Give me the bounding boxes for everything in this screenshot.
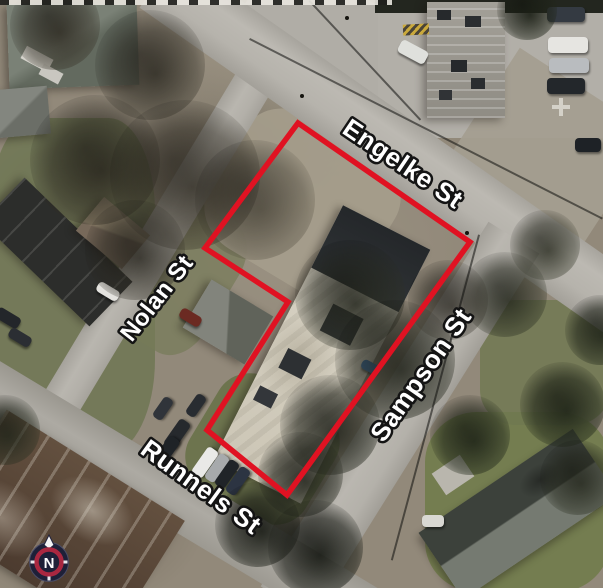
utility-pole [300, 94, 304, 98]
tree [408, 260, 488, 340]
rooftop-ac-3 [451, 60, 467, 72]
map-edge-dashes [0, 0, 392, 5]
utility-pole [345, 16, 349, 20]
tree [195, 140, 315, 260]
tree [268, 500, 363, 588]
tree [510, 210, 580, 280]
car [422, 515, 444, 527]
rooftop-ac-5 [439, 90, 452, 100]
pavement-cross-marking [552, 98, 570, 116]
aerial-map[interactable]: Engelke St Nolan St Sampson St Runnels S… [0, 0, 603, 588]
building-commercial-topright [427, 2, 505, 118]
rooftop-ac-4 [471, 78, 485, 89]
car [547, 78, 585, 94]
tree [85, 200, 185, 300]
rooftop-hvac-3 [253, 385, 278, 408]
car [575, 138, 601, 152]
tree [520, 362, 603, 447]
rooftop-ac-1 [437, 10, 451, 20]
car [548, 37, 588, 53]
rooftop-hvac-2 [278, 348, 311, 379]
car [549, 58, 589, 73]
yellow-hatch-marking [403, 23, 430, 35]
rooftop-ac-2 [465, 16, 481, 27]
tree [430, 395, 510, 475]
utility-pole [465, 231, 469, 235]
